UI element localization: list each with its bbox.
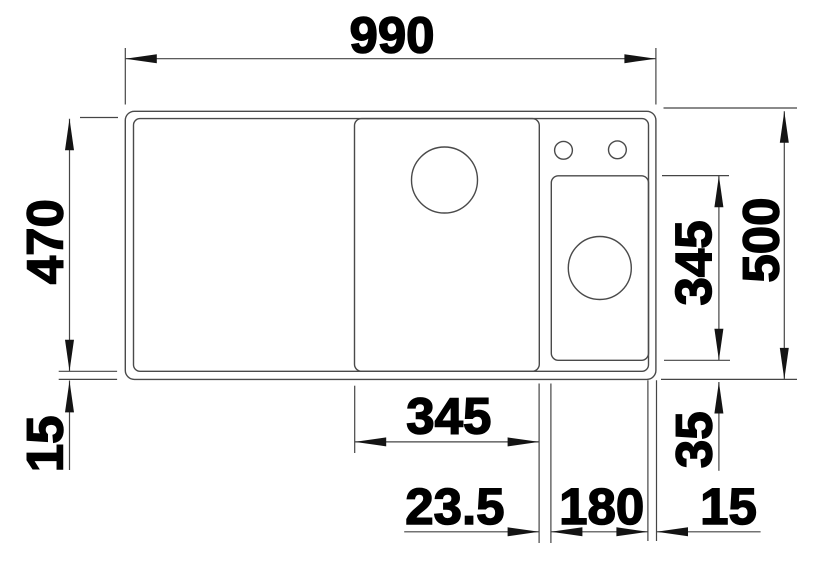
svg-text:15: 15 <box>16 416 73 473</box>
svg-text:345: 345 <box>406 388 491 445</box>
svg-text:990: 990 <box>349 6 434 63</box>
svg-text:500: 500 <box>733 198 790 283</box>
svg-text:15: 15 <box>700 478 757 535</box>
svg-text:470: 470 <box>17 199 74 284</box>
svg-text:180: 180 <box>559 478 644 535</box>
svg-text:345: 345 <box>665 220 722 305</box>
svg-text:35: 35 <box>665 411 722 468</box>
svg-text:23.5: 23.5 <box>405 478 504 535</box>
